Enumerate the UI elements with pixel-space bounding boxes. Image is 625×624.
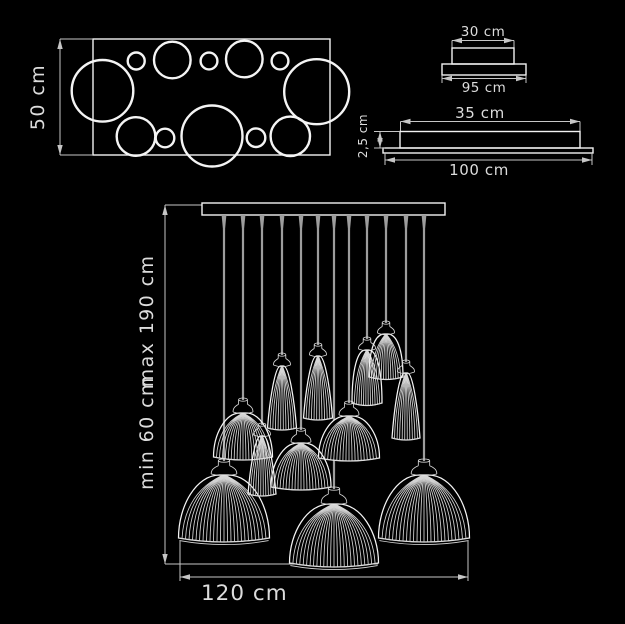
wire-taper <box>365 215 370 231</box>
dim-label-2-5cm: 2,5 cm <box>356 114 370 158</box>
neck-side <box>239 400 248 405</box>
dim-label-35cm: 35 cm <box>455 104 505 122</box>
dimension-arrow <box>57 145 62 155</box>
dimension-arrow <box>401 119 411 124</box>
lampshade-dome <box>379 459 470 545</box>
dim-label-30cm: 30 cm <box>461 24 506 40</box>
dimension-arrow <box>582 157 592 162</box>
canopy-box <box>452 48 514 64</box>
canopy-side-view-small <box>442 38 526 83</box>
canopy-hole <box>226 41 263 78</box>
wire-taper <box>347 215 352 231</box>
lampshade-dome <box>179 459 270 545</box>
lampshade-dome <box>319 401 380 461</box>
neck-collar <box>233 404 253 412</box>
canopy-hole <box>128 53 145 70</box>
neck-collar <box>377 326 394 333</box>
neck-collar <box>411 466 437 474</box>
neck-collar <box>273 358 290 365</box>
wire-taper <box>332 215 337 231</box>
dim-label-95cm: 95 cm <box>462 80 507 96</box>
canopy-base <box>442 64 526 75</box>
canopy-hole <box>156 129 175 148</box>
diagram-canvas: 50 cm 30 cm 95 cm 35 cm 2,5 cm 100 cm mi… <box>0 0 625 624</box>
canopy-side-view-large <box>374 119 593 165</box>
lamp-dimension-diagram: 50 cm 30 cm 95 cm 35 cm 2,5 cm 100 cm mi… <box>0 0 625 624</box>
shade-bottom-rim <box>268 428 297 430</box>
dim-label-120cm: 120 cm <box>201 581 288 606</box>
neck-side <box>418 461 429 466</box>
neck-collar <box>291 434 311 442</box>
canopy-base <box>383 148 593 153</box>
dim-label-50cm: 50 cm <box>27 64 49 130</box>
dimension-arrow <box>570 119 580 124</box>
wire-taper <box>404 215 409 231</box>
canopy-hole <box>247 128 266 147</box>
dimension-arrow <box>504 38 514 43</box>
wire-taper <box>422 215 427 231</box>
chandelier-front-view <box>162 203 469 581</box>
canopy-hole <box>201 53 218 70</box>
dimension-arrow <box>458 574 468 579</box>
canopy-hole <box>154 42 191 79</box>
dimension-arrow <box>377 138 382 148</box>
canopy-hole <box>284 59 349 124</box>
canopy-top-view <box>57 39 349 167</box>
canopy-box <box>400 132 580 149</box>
neck-collar <box>321 494 347 503</box>
neck-collar <box>309 348 326 355</box>
neck-side <box>297 430 306 435</box>
dimension-arrow <box>385 157 395 162</box>
neck-collar <box>339 407 359 415</box>
lampshade-dome <box>290 487 379 570</box>
dimension-arrow <box>162 205 167 215</box>
dimension-arrow <box>516 76 526 81</box>
wire-taper <box>299 215 304 231</box>
lampshade-cone <box>392 360 420 440</box>
wire-taper <box>222 215 227 231</box>
canopy-hole <box>271 117 310 156</box>
canopy-hole <box>182 106 243 167</box>
lampshade-cone <box>268 353 297 430</box>
wire-taper <box>316 215 321 231</box>
neck-side <box>328 489 339 495</box>
wire-taper <box>241 215 246 231</box>
canopy-hole <box>272 53 289 70</box>
dim-label-100cm: 100 cm <box>449 161 509 179</box>
shade-bottom-rim <box>392 438 420 440</box>
neck-side <box>218 461 229 466</box>
wire-taper <box>260 215 265 231</box>
neck-collar <box>211 466 237 474</box>
dimension-arrow <box>162 554 167 564</box>
lampshade-cone <box>304 343 333 420</box>
shade-bottom-rim <box>304 418 333 420</box>
dimension-arrow <box>57 39 62 49</box>
dimension-arrow <box>442 76 452 81</box>
dim-label-max-190cm: max 190 cm <box>136 255 158 388</box>
dim-label-min-60cm: min 60 cm <box>136 376 158 490</box>
dimension-arrow <box>180 574 190 579</box>
wire-taper <box>280 215 285 231</box>
wire-taper <box>384 215 389 231</box>
ceiling-bar <box>202 203 445 215</box>
canopy-hole <box>72 60 134 122</box>
canopy-hole <box>117 117 156 156</box>
